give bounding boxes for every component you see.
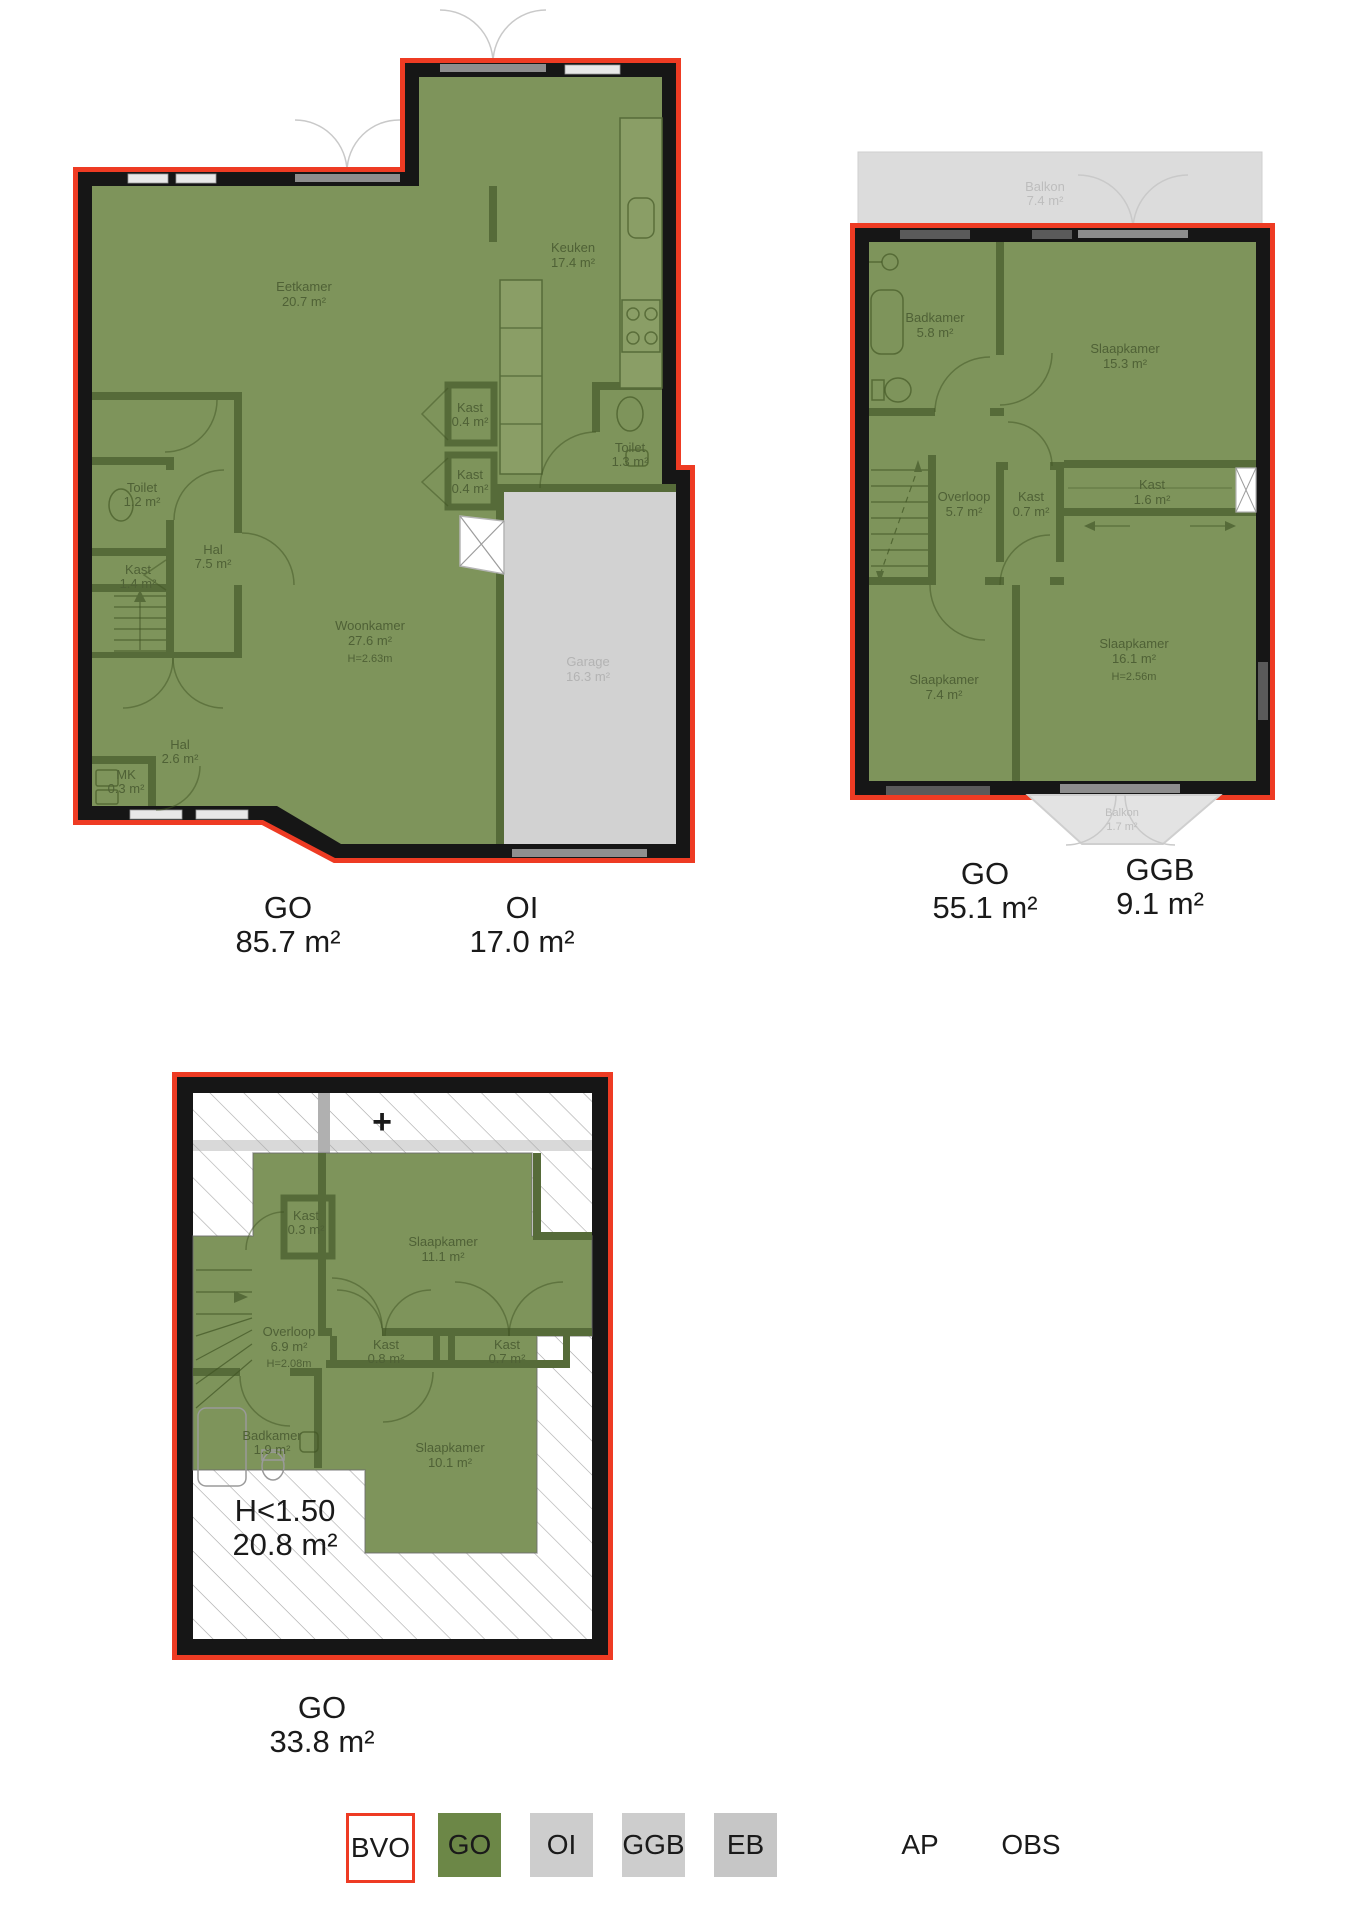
room-area: 0.4 m² (452, 414, 490, 429)
room-label: Keuken (551, 240, 595, 255)
room-label: Overloop (938, 489, 991, 504)
room-area: 7.5 m² (195, 556, 233, 571)
floor-plan-ground: Eetkamer 20.7 m² Keuken 17.4 m² Kast 0.4… (78, 10, 690, 959)
room-label: MK (116, 767, 136, 782)
legend-swatch-obs: OBS (986, 1813, 1076, 1877)
room-area: 1.4 m² (120, 576, 158, 591)
room-label: Hal (203, 542, 223, 557)
total-area: 85.7 m² (235, 924, 340, 959)
total-code: GO (298, 1690, 346, 1725)
legend-label: OBS (1001, 1829, 1060, 1861)
room-label: Eetkamer (276, 279, 332, 294)
room-area: 16.1 m² (1112, 651, 1157, 666)
room-label: Kast (1018, 489, 1044, 504)
legend-label: OI (547, 1829, 577, 1861)
room-label: Slaapkamer (1099, 636, 1169, 651)
room-area: 7.4 m² (926, 687, 964, 702)
wall-stub (318, 1093, 330, 1153)
room-area: 0.3 m² (288, 1222, 326, 1237)
room-area: 0.7 m² (489, 1351, 527, 1366)
room-label: Slaapkamer (1090, 341, 1160, 356)
total-area: 9.1 m² (1116, 886, 1204, 921)
room-label: Hal (170, 737, 190, 752)
room-area: 7.4 m² (1027, 193, 1065, 208)
room-area: 10.1 m² (428, 1455, 473, 1470)
room-label: Slaapkamer (415, 1440, 485, 1455)
room-label: Toilet (127, 480, 158, 495)
room-area: 17.4 m² (551, 255, 596, 270)
room-label: Kast (373, 1337, 399, 1352)
total-code: OI (506, 890, 539, 925)
room-area: 5.8 m² (917, 325, 955, 340)
total-area: 17.0 m² (469, 924, 574, 959)
total-area: 33.8 m² (269, 1724, 374, 1759)
room-area: 15.3 m² (1103, 356, 1148, 371)
attic-totals: GO 33.8 m² (269, 1690, 374, 1759)
floor-plan-first: Balkon 7.4 m² Badkamer 5.8 m² Slaapkamer… (855, 152, 1270, 925)
legend-label: BVO (351, 1832, 410, 1864)
room-label: Slaapkamer (909, 672, 979, 687)
room-area: 11.1 m² (421, 1249, 465, 1264)
room-label: Garage (566, 654, 609, 669)
room-area: 6.9 m² (271, 1339, 309, 1354)
room-label: Overloop (263, 1324, 316, 1339)
total-code: GO (961, 856, 1009, 891)
total-code: GGB (1126, 852, 1195, 887)
room-label: Kast (1139, 477, 1165, 492)
room-area: 0.7 m² (1013, 504, 1051, 519)
room-label: Balkon (1025, 179, 1065, 194)
room-height: H=2.56m (1112, 671, 1157, 683)
plus-symbol: + (372, 1103, 392, 1141)
room-height: H=2.63m (348, 653, 393, 665)
total-code: GO (264, 890, 312, 925)
room-label: Kast (293, 1208, 319, 1223)
room-area: 0.4 m² (452, 481, 490, 496)
room-label: Kast (457, 467, 483, 482)
room-label: Kast (494, 1337, 520, 1352)
room-area: 27.6 m² (348, 633, 393, 648)
room-height: H=2.08m (267, 1358, 312, 1370)
ground-totals: GO 85.7 m² OI 17.0 m² (235, 890, 574, 959)
legend-swatch-go: GO (438, 1813, 501, 1877)
balcony-bottom (1028, 795, 1220, 845)
first-totals: GO 55.1 m² GGB 9.1 m² (932, 852, 1203, 925)
room-area: 16.3 m² (566, 669, 611, 684)
room-label: Badkamer (905, 310, 965, 325)
floorplan-page: Eetkamer 20.7 m² Keuken 17.4 m² Kast 0.4… (0, 0, 1358, 1920)
low-height-label: H<1.50 (235, 1493, 336, 1528)
room-label: Slaapkamer (408, 1234, 478, 1249)
legend-swatch-ggb: GGB (622, 1813, 685, 1877)
low-height-area: 20.8 m² (232, 1527, 337, 1562)
room-label: Kast (457, 400, 483, 415)
room-label: Badkamer (242, 1428, 302, 1443)
room-area: 5.7 m² (946, 504, 984, 519)
room-label: Woonkamer (335, 618, 406, 633)
room-label: Balkon (1105, 807, 1139, 819)
room-label: Kast (125, 562, 151, 577)
room-area: 0.8 m² (368, 1351, 406, 1366)
room-area: 1.3 m² (612, 454, 650, 469)
legend-label: GO (448, 1829, 492, 1861)
legend-swatch-bvo: BVO (346, 1813, 415, 1883)
room-area: 1.9 m² (254, 1442, 292, 1457)
floor-plan-attic: + Kast 0.3 m² Slaapkamer 11.1 m² Overloo… (177, 1077, 608, 1759)
legend-label: AP (901, 1829, 938, 1861)
room-area: 20.7 m² (282, 294, 327, 309)
room-area: 1.2 m² (124, 494, 162, 509)
room-label: Toilet (615, 440, 646, 455)
room-area: 2.6 m² (162, 751, 200, 766)
legend-swatch-ap: AP (884, 1813, 956, 1877)
legend-swatch-eb: EB (714, 1813, 777, 1877)
legend-label: GGB (622, 1829, 684, 1861)
legend-label: EB (727, 1829, 764, 1861)
room-area: 1.6 m² (1134, 492, 1172, 507)
room-area: 0.3 m² (108, 781, 146, 796)
total-area: 55.1 m² (932, 890, 1037, 925)
floorplan-canvas: Eetkamer 20.7 m² Keuken 17.4 m² Kast 0.4… (0, 0, 1358, 1920)
legend-swatch-oi: OI (530, 1813, 593, 1877)
room-area: 1.7 m² (1106, 821, 1138, 833)
